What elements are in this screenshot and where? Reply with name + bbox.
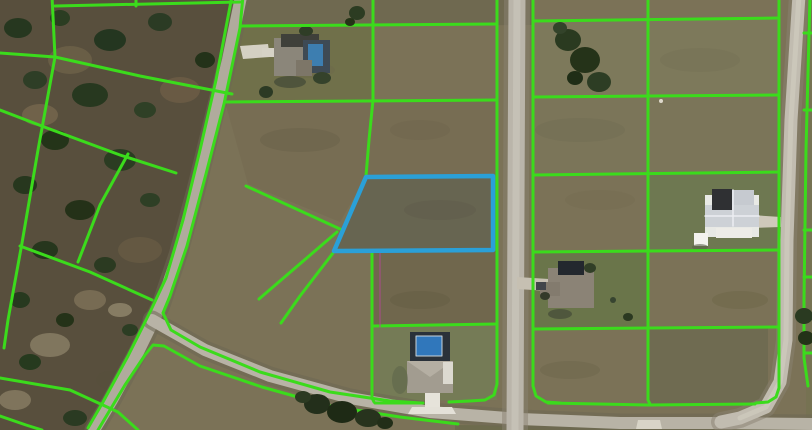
aerial-parcel-map[interactable]	[0, 0, 812, 430]
map-image[interactable]	[0, 0, 812, 430]
